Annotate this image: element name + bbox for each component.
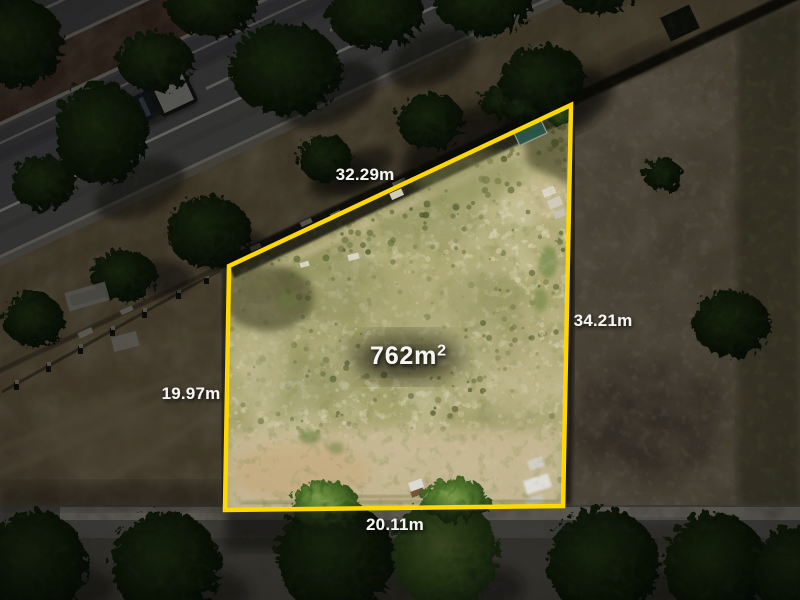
svg-text:19.97m: 19.97m — [162, 384, 221, 403]
svg-text:20.11m: 20.11m — [366, 515, 424, 534]
svg-text:762m2: 762m2 — [370, 342, 447, 370]
svg-text:34.21m: 34.21m — [574, 311, 633, 330]
svg-text:32.29m: 32.29m — [336, 165, 395, 184]
